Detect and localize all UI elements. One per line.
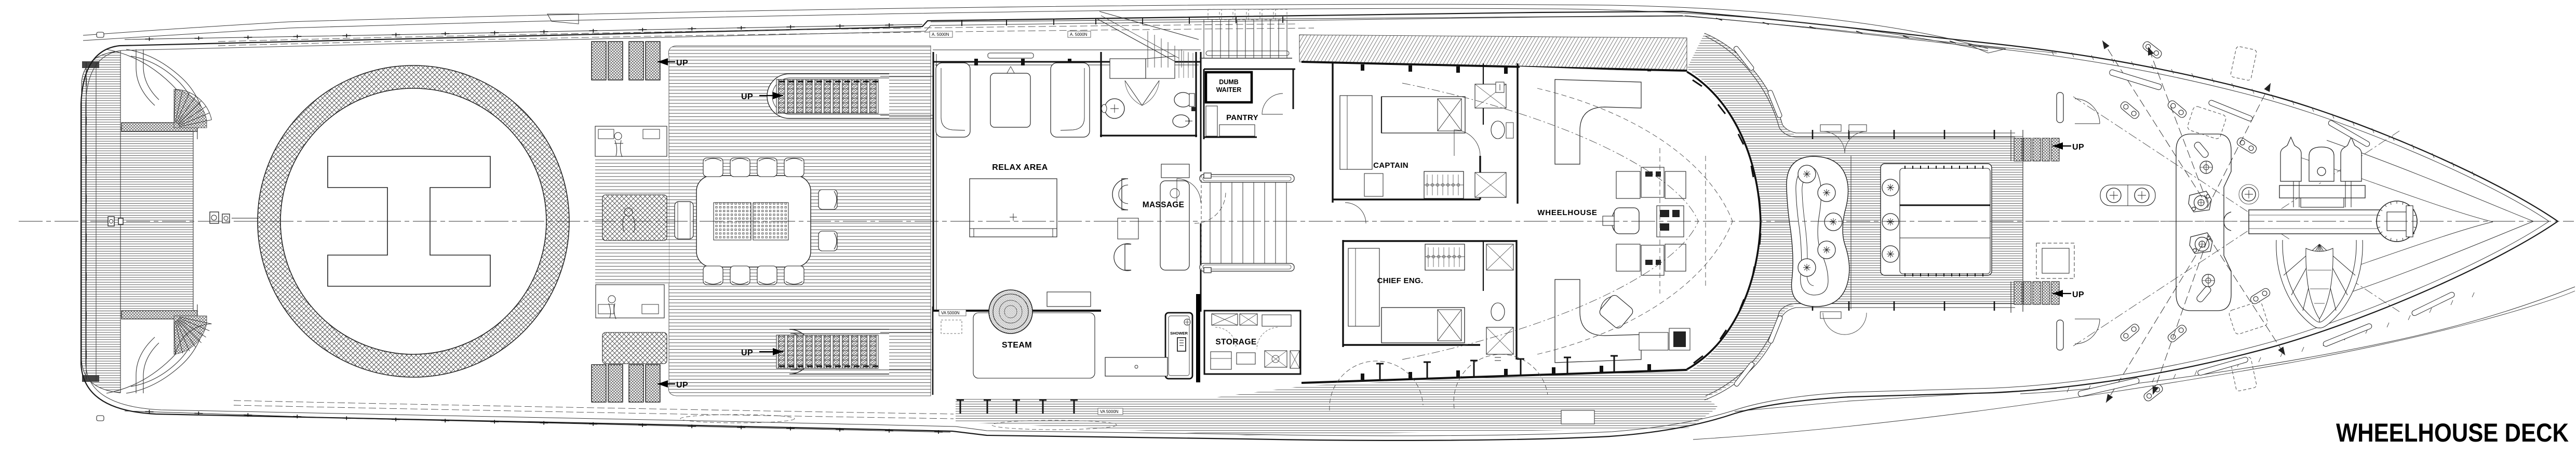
svg-text:UP: UP: [741, 92, 753, 101]
svg-text:WAITER: WAITER: [1216, 86, 1242, 94]
svg-text:DUMB: DUMB: [1219, 78, 1239, 86]
svg-text:A. 5000N: A. 5000N: [932, 32, 949, 37]
svg-text:STEAM: STEAM: [1002, 341, 1032, 350]
svg-text:UP: UP: [2072, 290, 2084, 299]
svg-text:A. 5000N: A. 5000N: [1070, 32, 1088, 37]
svg-text:WHEELHOUSE: WHEELHOUSE: [1537, 208, 1598, 217]
svg-text:STORAGE: STORAGE: [1215, 338, 1256, 347]
svg-text:UP: UP: [741, 349, 753, 357]
svg-text:SHOWER: SHOWER: [1170, 331, 1188, 336]
svg-text:CAPTAIN: CAPTAIN: [1373, 161, 1408, 170]
svg-text:VA 5000N: VA 5000N: [941, 311, 960, 315]
svg-text:VA 5000N: VA 5000N: [1100, 409, 1119, 414]
svg-text:UP: UP: [676, 381, 688, 390]
svg-text:PANTRY: PANTRY: [1226, 113, 1258, 122]
svg-text:WHEELHOUSE DECK: WHEELHOUSE DECK: [2336, 418, 2569, 447]
svg-text:RELAX AREA: RELAX AREA: [992, 163, 1048, 172]
svg-text:UP: UP: [676, 59, 688, 68]
svg-text:MASSAGE: MASSAGE: [1143, 201, 1184, 209]
svg-text:UP: UP: [2072, 143, 2084, 152]
svg-text:CHIEF ENG.: CHIEF ENG.: [1377, 276, 1424, 285]
